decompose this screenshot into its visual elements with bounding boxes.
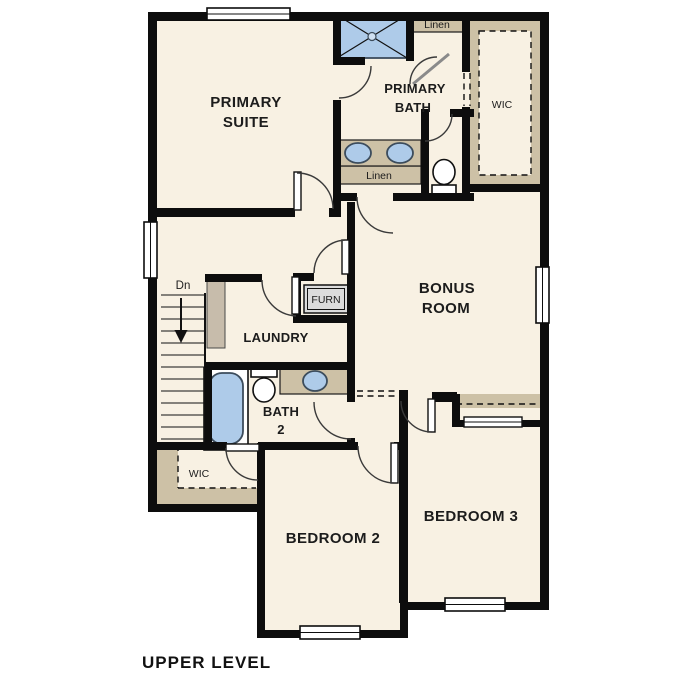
floor-plan-drawing: PRIMARY SUITE PRIMARY BATH BONUS ROOM LA… <box>0 0 687 687</box>
bedroom2-door-leaf <box>391 443 398 483</box>
bedroom3-closet-bypass-door <box>464 417 522 427</box>
bath2-label-line1: BATH <box>263 404 299 419</box>
wic-upper-label: WIC <box>492 99 513 111</box>
bonus-room-window <box>536 267 549 323</box>
primary-bath-label-line2: BATH <box>395 100 431 115</box>
primary-suite-window <box>207 8 290 20</box>
linen-upper-label: Linen <box>424 19 450 31</box>
stair-landing-window <box>144 222 157 278</box>
wic-lower-door-leaf <box>226 444 259 451</box>
linen-hall-label: Linen <box>366 170 392 182</box>
primary-suite-label-line2: SUITE <box>223 114 269 131</box>
floor-plan-page: PRIMARY SUITE PRIMARY BATH BONUS ROOM LA… <box>0 0 687 687</box>
primary-bath-label-line1: PRIMARY <box>384 81 446 96</box>
furnace-door-leaf <box>342 240 349 274</box>
sink <box>303 371 327 391</box>
bonus-room-label-line1: BONUS <box>419 280 475 297</box>
wic-lower-label: WIC <box>189 468 210 480</box>
bedroom2-window <box>300 626 360 639</box>
stair-low-wall <box>207 277 225 348</box>
bonus-room-label-line2: ROOM <box>422 300 470 317</box>
furnace-label: FURN <box>311 294 340 306</box>
sink-right <box>387 143 413 163</box>
primary-suite-label-line1: PRIMARY <box>210 94 281 111</box>
bedroom3-closet-shelf <box>452 394 540 408</box>
laundry-label: LAUNDRY <box>243 330 308 345</box>
bedroom2-label: BEDROOM 2 <box>286 530 380 547</box>
bedroom3-label: BEDROOM 3 <box>424 508 518 525</box>
sink-left <box>345 143 371 163</box>
toilet-primary <box>432 160 456 197</box>
toilet-bath2 <box>251 366 277 402</box>
stairs-dn-label: Dn <box>176 280 191 292</box>
laundry-door-leaf <box>292 277 299 314</box>
bath2-vanity <box>280 368 350 394</box>
double-vanity <box>339 140 421 166</box>
primary-suite-door-leaf <box>294 172 301 210</box>
bedroom3-window <box>445 598 505 611</box>
shower <box>337 15 407 58</box>
bedroom3-door-leaf <box>428 399 435 432</box>
bath2-label-line2: 2 <box>277 422 285 437</box>
page-title: UPPER LEVEL <box>142 653 271 672</box>
